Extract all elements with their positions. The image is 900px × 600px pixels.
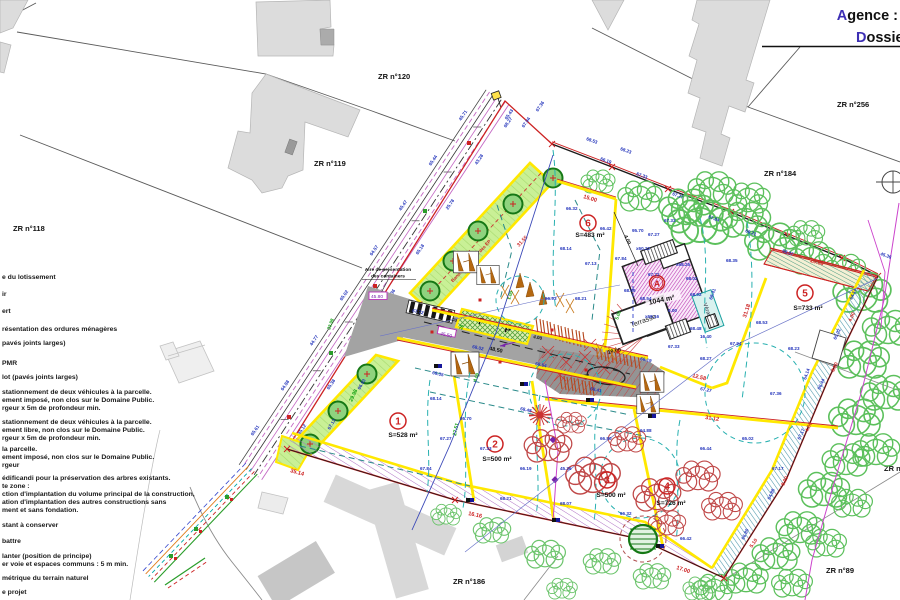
svg-text:67.33: 67.33 (668, 344, 680, 349)
svg-text:67.27: 67.27 (440, 436, 452, 441)
svg-text:ZR n°89: ZR n°89 (826, 566, 854, 575)
svg-text:67.13: 67.13 (585, 261, 597, 266)
svg-text:ZR n°186: ZR n°186 (453, 577, 485, 586)
svg-text:des containers: des containers (371, 274, 405, 280)
svg-text:S=726 m²: S=726 m² (656, 500, 686, 507)
svg-text:67.33: 67.33 (664, 218, 676, 223)
svg-text:66.42: 66.42 (600, 226, 612, 231)
svg-text:la parcelle.: la parcelle. (2, 446, 37, 453)
svg-text:ZR n°256: ZR n°256 (837, 100, 869, 109)
svg-text:ZR n°119: ZR n°119 (314, 159, 346, 168)
svg-text:68.14: 68.14 (560, 246, 572, 251)
svg-text:2: 2 (492, 439, 498, 450)
svg-text:PMR: PMR (2, 360, 17, 367)
svg-text:ement imposé, non clos sur le: ement imposé, non clos sur le Domaine Pu… (2, 397, 154, 404)
svg-text:67.94: 67.94 (730, 341, 742, 346)
svg-text:ement imposé, non clos sur le: ement imposé, non clos sur le Domaine Pu… (2, 454, 154, 461)
svg-text:S=733 m²: S=733 m² (793, 305, 823, 312)
svg-text:er voie et espaces communs : 5: er voie et espaces communs : 5 m min. (2, 561, 128, 568)
svg-text:3: 3 (604, 475, 610, 486)
svg-text:battre: battre (2, 538, 21, 545)
svg-text:68.23: 68.23 (788, 346, 800, 351)
svg-text:68.02: 68.02 (686, 276, 698, 281)
svg-text:65.02: 65.02 (742, 436, 754, 441)
svg-text:x60.22: x60.22 (636, 246, 650, 251)
svg-text:S=528 m²: S=528 m² (388, 432, 418, 439)
svg-text:66.93: 66.93 (545, 296, 557, 301)
svg-text:68.21: 68.21 (500, 496, 512, 501)
svg-text:45.80: 45.80 (371, 294, 383, 300)
svg-text:64.88: 64.88 (640, 428, 652, 433)
svg-text:e du lotissement: e du lotissement (2, 274, 56, 281)
svg-text:stant à conserver: stant à conserver (2, 522, 59, 529)
svg-text:ement libre, non clos sur le D: ement libre, non clos sur le Domaine Pub… (2, 427, 145, 434)
svg-text:ation d'implantation des autre: ation d'implantation des autres construc… (2, 499, 167, 506)
svg-text:67.17: 67.17 (772, 466, 784, 471)
svg-text:68.35: 68.35 (726, 258, 738, 263)
svg-text:A: A (654, 279, 660, 289)
svg-text:S=500 m²: S=500 m² (596, 492, 626, 499)
svg-text:édificandi pour la préservatio: édificandi pour la préservation des arbr… (2, 475, 171, 482)
svg-text:95.70: 95.70 (460, 416, 472, 421)
svg-text:68.54: 68.54 (640, 296, 652, 301)
svg-text:67.84: 67.84 (615, 256, 627, 261)
svg-text:66.32: 66.32 (620, 511, 632, 516)
svg-text:68.21: 68.21 (575, 296, 587, 301)
svg-text:ZR n°184: ZR n°184 (764, 169, 797, 178)
svg-text:68.02: 68.02 (690, 292, 702, 297)
svg-text:67.36: 67.36 (770, 391, 782, 396)
svg-text:Aire de présentation: Aire de présentation (365, 267, 411, 273)
svg-text:e projet: e projet (2, 589, 27, 596)
svg-text:68.07: 68.07 (560, 501, 572, 506)
svg-text:68.53: 68.53 (756, 320, 768, 325)
svg-text:rgeur x 5m de profondeur min.: rgeur x 5m de profondeur min. (2, 405, 101, 412)
svg-text:66.80: 66.80 (600, 436, 612, 441)
svg-text:45.36: 45.36 (560, 466, 572, 471)
svg-text:ment et sans fondation.: ment et sans fondation. (2, 507, 78, 514)
svg-text:67.33: 67.33 (480, 446, 492, 451)
svg-text:Dossier: Dossier (856, 30, 900, 46)
svg-text:68.56: 68.56 (624, 288, 636, 293)
svg-text:68.27: 68.27 (700, 356, 712, 361)
svg-text:68.14: 68.14 (430, 396, 442, 401)
svg-text:résentation des ordures ménagè: résentation des ordures ménagères (2, 326, 117, 333)
svg-text:te zone :: te zone : (2, 483, 30, 490)
svg-text:67.27: 67.27 (648, 232, 660, 237)
svg-text:6: 6 (585, 218, 591, 229)
svg-text:x68.16: x68.16 (645, 314, 659, 319)
svg-text:lot (pavés joints larges): lot (pavés joints larges) (2, 374, 78, 381)
svg-text:métrique du terrain naturel: métrique du terrain naturel (2, 575, 89, 582)
svg-text:rgeur x 5m de profondeur min.: rgeur x 5m de profondeur min. (2, 435, 101, 442)
svg-text:ction d'implantation du volume: ction d'implantation du volume principal… (2, 491, 195, 498)
svg-text:67.72: 67.72 (648, 272, 660, 277)
svg-text:16.40: 16.40 (700, 334, 712, 339)
svg-text:stationnement de deux véhicule: stationnement de deux véhicules à la par… (2, 389, 152, 396)
svg-text:S=483 m²: S=483 m² (575, 232, 605, 239)
svg-text:rgeur: rgeur (2, 462, 20, 469)
svg-text:pavés joints larges): pavés joints larges) (2, 340, 65, 347)
svg-text:lanter (position de principe): lanter (position de principe) (2, 553, 92, 560)
svg-text:5: 5 (802, 288, 808, 299)
svg-text:1: 1 (395, 416, 401, 427)
svg-text:95.70: 95.70 (632, 228, 644, 233)
svg-text:0.00: 0.00 (668, 308, 677, 313)
svg-text:ZR n°118: ZR n°118 (13, 224, 45, 233)
svg-text:ZR n°120: ZR n°120 (378, 72, 410, 81)
svg-text:Agence :: Agence : (837, 8, 898, 24)
svg-text:stationnement de deux véhicule: stationnement de deux véhicules à la par… (2, 419, 152, 426)
svg-text:68.48: 68.48 (690, 326, 702, 331)
svg-text:S=500 m²: S=500 m² (482, 456, 512, 463)
svg-text:66.42: 66.42 (680, 536, 692, 541)
svg-text:ert: ert (2, 308, 11, 315)
svg-text:67.84: 67.84 (420, 466, 432, 471)
svg-text:66.32: 66.32 (566, 206, 578, 211)
svg-text:ir: ir (2, 291, 7, 298)
svg-text:4: 4 (664, 481, 670, 492)
svg-text:66.19: 66.19 (520, 466, 532, 471)
svg-text:66.44: 66.44 (700, 446, 712, 451)
svg-text:x68.25: x68.25 (676, 262, 690, 267)
